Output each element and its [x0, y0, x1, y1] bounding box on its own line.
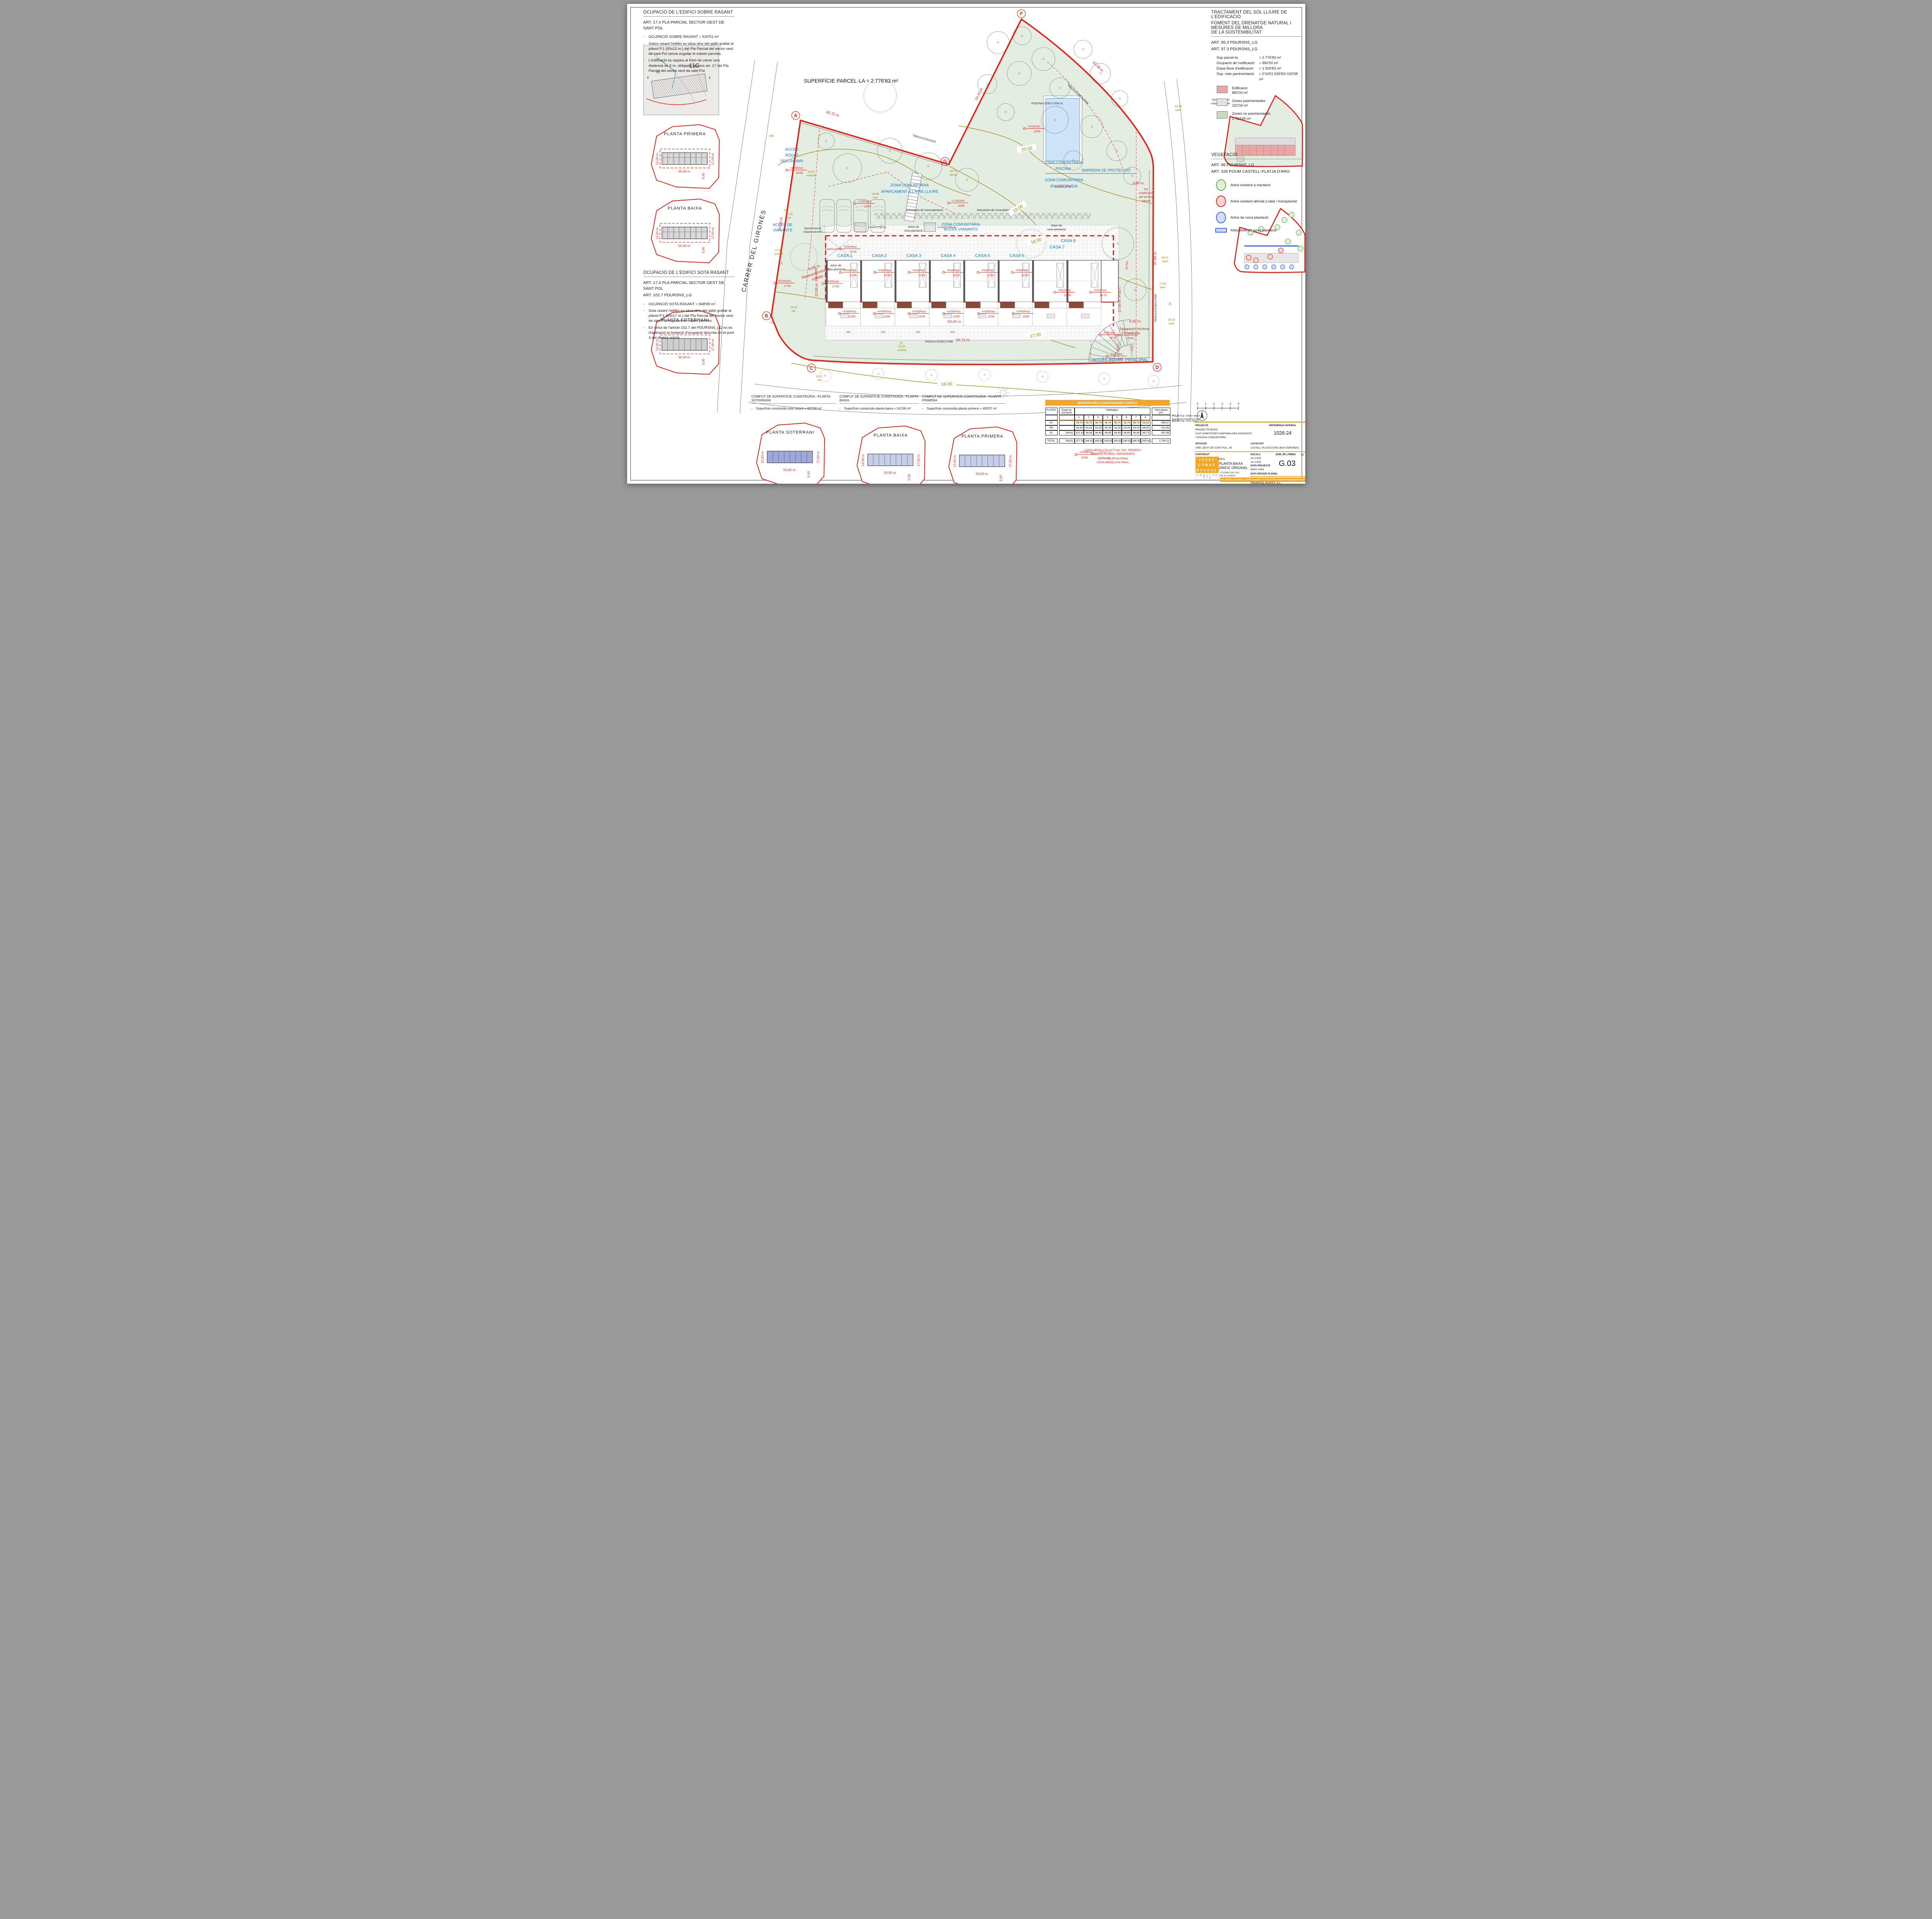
svg-text:-0'02(Pav): -0'02(Pav): [1015, 269, 1029, 272]
color-swatch: [1217, 86, 1228, 93]
svg-text:2%: 2%: [881, 330, 885, 334]
scale-tick: 1: [1205, 402, 1206, 406]
svg-text:15.41: 15.41: [898, 345, 905, 348]
svg-text:16'80: 16'80: [848, 314, 855, 318]
table-cell: 511,66: [1152, 425, 1170, 430]
svg-text:Separació mínima: Separació mínima: [1119, 327, 1149, 331]
svg-text:12,00 m.: 12,00 m.: [655, 152, 659, 165]
panel-tractament: TRACTAMENT DEL SÒL LLIURE DE L'EDIFICACI…: [1211, 10, 1302, 121]
table-cell: [1112, 435, 1122, 439]
table-cell: -: [1059, 420, 1075, 425]
svg-text:+1'20(Jar): +1'20(Jar): [951, 199, 964, 202]
table-cell: [1059, 435, 1075, 439]
topo-spot: 18.23camí: [1168, 318, 1175, 325]
svg-text:17'00: 17'00: [832, 285, 839, 288]
sheet-code: G.03: [1279, 459, 1296, 468]
table-cell: 63,28: [1131, 425, 1141, 430]
svg-text:15.17: 15.17: [816, 374, 823, 378]
internal-ref: 1026-24: [1274, 430, 1292, 436]
svg-text:50,00 m.: 50,00 m.: [976, 472, 988, 476]
table-cell: [1152, 435, 1170, 439]
svg-text:16.43: 16.43: [790, 306, 797, 309]
svg-text:2%: 2%: [846, 330, 850, 334]
cota-legend: +0'00(Pav) 16'80 COTA ABSOLUTA-ACTUAL DE…: [1075, 441, 1141, 464]
table-cell: 66,89: [1131, 430, 1141, 435]
scale-bar: 012345: [1196, 402, 1239, 410]
casa-label: CASA 2: [872, 253, 886, 258]
table-cell: 63,28: [1103, 425, 1112, 430]
table-cell: 59,75: [1075, 420, 1084, 425]
svg-text:17,00 m.: 17,00 m.: [916, 454, 920, 466]
table-cell: 8: [1141, 415, 1150, 420]
svg-text:TANCA A EXECUTAR: TANCA A EXECUTAR: [1153, 294, 1157, 323]
table-title: SUPERFICÍES CONSTRUIDES EDIFICI: [1045, 400, 1170, 406]
panel-comput-baixa: CÒMPUT DE SUPERFÍCIE CONSTRUÏDA - PLANTA…: [840, 394, 919, 410]
table-cell: PLANTA: [1045, 408, 1058, 415]
svg-text:COTA ABSOLUTA-ACTUAL DEL TERRE: COTA ABSOLUTA-ACTUAL DEL TERRENY: [1084, 449, 1141, 452]
path-right: [1164, 79, 1192, 419]
casa-label: CASA 5: [975, 253, 990, 258]
panel-sota-rasant: OCUPACIÓ DE L'EDIFICI SOTA RASANT ART. 1…: [643, 270, 735, 342]
svg-text:16'78: 16'78: [1021, 274, 1028, 277]
surface-table: SUPERFICÍES CONSTRUIDES EDIFICI PLANTAEs…: [1045, 400, 1170, 444]
svg-text:18'00: 18'00: [864, 204, 871, 208]
street-name: CARRER DEL GIRONÈS: [740, 209, 767, 293]
table-cell: 1.794,21: [1152, 439, 1170, 444]
casa-label: CASA 7: [1049, 245, 1064, 250]
svg-text:59.72 m.: 59.72 m.: [956, 338, 970, 342]
bottom-mini-plans: PLANTA SOTERRANI50,00 m.12,00 m.17,00 m.…: [756, 423, 1017, 484]
table-cell: 7: [1131, 415, 1141, 420]
table-cell: [1075, 435, 1084, 439]
svg-text:5'00%: 5'00%: [1130, 343, 1133, 352]
svg-text:-0'02(Pav): -0'02(Pav): [1058, 288, 1071, 292]
table-cell: 186,93: [1084, 439, 1094, 444]
scale-tick: 2: [1213, 402, 1214, 406]
svg-text:+0'00(Pav): +0'00(Pav): [877, 309, 891, 313]
casa-label: CASA 3: [906, 253, 921, 258]
casa-label: CASA 4: [940, 253, 955, 258]
svg-text:18.23: 18.23: [1168, 318, 1175, 321]
svg-text:17.49: 17.49: [786, 212, 793, 216]
svg-text:TALÚS: TALÚS: [1125, 261, 1128, 270]
svg-text:2%: 2%: [915, 330, 920, 334]
boundary-letter: A: [791, 111, 799, 119]
svg-text:16'78: 16'78: [987, 274, 994, 277]
table-cell: 186,93: [1103, 439, 1112, 444]
svg-text:ACCÉS: ACCÉS: [785, 147, 798, 152]
table-cell: [1141, 435, 1150, 439]
topo-spot: 17.40camí: [1159, 282, 1166, 289]
svg-text:18'00: 18'00: [957, 204, 964, 207]
table-cell: 6: [1122, 415, 1131, 420]
svg-text:SECUNDARI: SECUNDARI: [780, 159, 803, 163]
existing-tree: [987, 31, 1009, 53]
mini-plan-title: PLANTA BAIXA: [668, 206, 702, 211]
legend-arbre-talar: Arbre existent afectat a talar i transpl…: [1215, 195, 1302, 207]
table-cell: 195,04: [1141, 439, 1150, 444]
site-plan: PISCINA 10'50 X 5'50 m. SUPERFÍCIE PARCE…: [627, 4, 1305, 484]
svg-text:16'78: 16'78: [849, 250, 856, 253]
mini-plan-title: PLANTA BAIXA: [873, 433, 908, 438]
svg-text:12,00 m.: 12,00 m.: [952, 454, 956, 467]
parcel-area-title: SUPERFÍCIE PARCEL·LA = 2.776'83 m²: [804, 78, 898, 84]
boundary-letter: B: [762, 312, 770, 320]
table-cell: 186,93: [1131, 439, 1141, 444]
svg-text:Dipòsit soterrat: Dipòsit soterrat: [804, 227, 821, 230]
casa-label: CASA 6: [1009, 253, 1024, 258]
table-cell: 3: [1094, 415, 1103, 420]
svg-text:camí: camí: [1168, 322, 1174, 325]
svg-text:del terreny: del terreny: [1139, 195, 1153, 199]
svg-text:16'80: 16'80: [1081, 456, 1088, 459]
table-cell: [1103, 435, 1112, 439]
svg-text:-0'02(Pav): -0'02(Pav): [1093, 288, 1107, 292]
table-cell: 63,28: [1122, 425, 1131, 430]
data-projecte: MAIG 2024: [1251, 468, 1264, 472]
svg-text:18.25: 18.25: [808, 170, 815, 173]
svg-text:G: G: [943, 159, 947, 164]
svg-text:16'78: 16'78: [918, 274, 925, 277]
svg-text:16'80: 16'80: [987, 314, 994, 318]
svg-text:3,00 m.: 3,00 m.: [1132, 181, 1145, 185]
mini-plan-title: PLANTA PRIMERA: [961, 434, 1003, 439]
svg-text:Arbre de: Arbre de: [908, 225, 919, 229]
localitat: CASTELL-PLATJA D'ARO (BAIX EMPORDÀ): [1251, 446, 1299, 450]
boundary-letter: F: [1017, 10, 1025, 18]
svg-text:12,00 m.: 12,00 m.: [861, 454, 864, 466]
contact-bar: Col. 32765-4 // C.Lleida, 7 / 17240 Llag…: [1220, 478, 1305, 482]
mini-plan: PLANTA PRIMERA50,00 m.12,00 m.17,00 m.5,…: [949, 427, 1017, 484]
table-cell: 56,76: [1094, 420, 1103, 425]
svg-text:18'00: 18'00: [796, 171, 803, 175]
drawing-sheet: PISCINA 10'50 X 5'50 m. SUPERFÍCIE PARCE…: [627, 4, 1305, 484]
svg-text:+0'00(Pav): +0'00(Pav): [1016, 309, 1030, 313]
svg-text:19.17: 19.17: [1161, 256, 1168, 259]
table-cell: 186,93: [1112, 439, 1122, 444]
svg-text:-0'30(Jar): -0'30(Jar): [1103, 331, 1115, 334]
svg-text:B: B: [764, 313, 768, 318]
svg-text:93.38 m.: 93.38 m.: [1091, 61, 1104, 74]
svg-text:16'78: 16'78: [884, 274, 891, 277]
svg-text:C: C: [810, 365, 813, 371]
scale-tick: 3: [1221, 402, 1223, 406]
table-cell: 227,78: [1075, 439, 1084, 444]
svg-text:COTA RELATIVA FINAL: COTA RELATIVA FINAL: [1097, 457, 1128, 460]
table-cell: 186,93: [1122, 439, 1131, 444]
svg-text:+1'20(Vor): +1'20(Vor): [789, 166, 803, 170]
svg-text:RODAT: RODAT: [785, 153, 798, 158]
casa-label: CASA 1: [837, 253, 852, 258]
table-cell: 63,28: [1084, 425, 1094, 430]
svg-text:camí: camí: [1175, 108, 1181, 112]
svg-text:d'aigües pluvials: d'aigües pluvials: [803, 231, 822, 233]
svg-text:12,00 m.: 12,00 m.: [655, 226, 659, 239]
svg-text:vorlímit: vorlímit: [897, 348, 906, 352]
svg-text:16'78: 16'78: [952, 274, 959, 277]
svg-text:19'95: 19'95: [1033, 130, 1040, 133]
table-cell: 5: [1112, 415, 1122, 420]
mini-plan: PLANTA BAIXA50,00 m.12,00 m.17,00 m.5,00: [651, 199, 719, 263]
svg-text:5,00: 5,00: [701, 359, 705, 365]
svg-text:nova plantació: nova plantació: [904, 229, 923, 233]
casa-label: CASA 8: [1060, 238, 1075, 243]
svg-text:37.84 m.: 37.84 m.: [1153, 251, 1157, 265]
svg-text:-0'02(Pav): -0'02(Pav): [878, 269, 891, 272]
table-cell: 56,76: [1084, 420, 1094, 425]
svg-text:VIANANTS: VIANANTS: [773, 228, 792, 233]
svg-text:17,00 m.: 17,00 m.: [711, 226, 714, 239]
table-cell: TOTAL: [1045, 439, 1058, 444]
table-cell: PB: [1045, 425, 1058, 430]
svg-text:vor: vor: [817, 378, 821, 382]
svg-text:2%: 2%: [950, 330, 954, 334]
svg-text:16'80: 16'80: [883, 314, 890, 318]
svg-text:-0'02(Pav): -0'02(Pav): [981, 269, 994, 272]
topo-spot: 20.54camí: [1174, 105, 1181, 112]
scale-tick: 4: [1229, 402, 1231, 406]
table-cell: Total planta (m²): [1152, 408, 1170, 415]
escala: A0 1/100A2 1/200: [1251, 457, 1261, 464]
svg-text:15'65: 15'65: [1116, 357, 1123, 360]
table-cell: [1152, 415, 1170, 420]
svg-text:15'40: 15'40: [1126, 337, 1133, 340]
table-cell: [1131, 435, 1141, 439]
svg-text:5,00: 5,00: [998, 475, 1002, 481]
svg-text:D: D: [1155, 365, 1159, 370]
boundary-letter: D: [1153, 363, 1161, 371]
svg-text:-1'40(Vor): -1'40(Vor): [1120, 331, 1133, 335]
table-cell: 56,76: [1112, 420, 1122, 425]
color-swatch: [1217, 99, 1228, 106]
svg-text:6,00 m.: 6,00 m.: [1129, 320, 1141, 324]
svg-text:Arbustives de nova plantació: Arbustives de nova plantació: [906, 208, 943, 212]
svg-text:20.54: 20.54: [1174, 105, 1181, 108]
svg-text:vorlímit: vorlímit: [774, 252, 783, 256]
svg-text:50,00 m.: 50,00 m.: [678, 169, 691, 173]
table-cell: 186,93: [1094, 439, 1103, 444]
tree-new-icon: [1216, 212, 1226, 223]
svg-text:PISCINA: PISCINA: [1055, 167, 1071, 171]
topo-spot: 19.17camí: [1161, 256, 1168, 263]
lamina-num: 03: [1301, 453, 1304, 457]
table-cell: -: [1059, 425, 1075, 430]
color-swatch: [1217, 111, 1228, 119]
panel-comput-soterrani: CÒMPUT DE SUPERFÍCIE CONSTRUÏDA - PLANTA…: [752, 394, 836, 410]
table-cell: Habitatges: [1075, 408, 1150, 415]
svg-text:17.32: 17.32: [775, 248, 782, 252]
table-cell: S1: [1045, 430, 1058, 435]
svg-text:camí: camí: [1162, 259, 1168, 263]
svg-text:d60: d60: [769, 134, 774, 138]
svg-text:17,00 m.: 17,00 m.: [816, 450, 820, 463]
existing-tree: [1111, 90, 1128, 107]
svg-text:16.00: 16.00: [941, 382, 952, 387]
svg-text:5,00: 5,00: [907, 474, 911, 481]
mini-plan: PLANTA PRIMERA50,00 m.12,00 m.17,00 m.5,…: [651, 125, 719, 189]
svg-text:TANCA A EXECUTAR: TANCA A EXECUTAR: [925, 340, 953, 343]
svg-text:16'80: 16'80: [952, 314, 959, 318]
shrub-new-icon: [1215, 228, 1227, 233]
mini-plan: PLANTA BAIXA50,00 m.12,00 m.17,00 m.5,00: [857, 426, 925, 484]
svg-text:5,00: 5,00: [701, 247, 705, 253]
svg-text:50,00 m.: 50,00 m.: [884, 471, 896, 474]
table-cell: 66,89: [1094, 430, 1103, 435]
table-cell: 56,76: [1103, 420, 1112, 425]
panel-sobre-rasant: OCUPACIÓ DE L'EDIFICI SOBRE RASANT ART. …: [643, 10, 735, 75]
table-cell: 4: [1103, 415, 1112, 420]
svg-text:12,00 m.: 12,00 m.: [760, 450, 764, 463]
legend-arbustives: Arbustives de nova plantació: [1215, 228, 1302, 233]
table-cell: 56,76: [1131, 420, 1141, 425]
table-cell: 66,89: [1122, 430, 1131, 435]
svg-text:+0'00(Pav): +0'00(Pav): [946, 309, 961, 313]
legend-arbre-mantenir: Arbre existent a mantenir: [1215, 179, 1302, 191]
svg-text:8: 8: [647, 76, 649, 80]
table-cell: 63,28: [1094, 425, 1103, 430]
svg-text:-1'15(Vor): -1'15(Vor): [1110, 352, 1122, 355]
contour-label: 16.00: [937, 380, 956, 387]
svg-text:+0'00(Pav): +0'00(Pav): [842, 309, 856, 313]
svg-text:camí: camí: [1160, 286, 1166, 289]
svg-text:5'00%: 5'00%: [1116, 343, 1120, 352]
svg-text:16'50: 16'50: [1109, 336, 1116, 339]
table-cell: [1059, 415, 1075, 420]
table-cell: 2: [1084, 415, 1094, 420]
legend-edificacio: Edificació850'00 m²: [1217, 86, 1302, 95]
table-cell: 66,05: [1141, 425, 1150, 430]
legend-no-pavimentades: Zones no pavimentades1.734'49 m²: [1217, 111, 1302, 121]
svg-text:17,00 m.: 17,00 m.: [1008, 454, 1012, 467]
scale-tick: 0: [1196, 402, 1198, 406]
svg-text:ZONA COMUNITÀRIA: ZONA COMUNITÀRIA: [1044, 160, 1082, 165]
svg-text:+3'15(Jar): +3'15(Jar): [1027, 125, 1040, 128]
table-cell: 459,57: [1152, 420, 1170, 425]
svg-text:16'80: 16'80: [918, 314, 925, 318]
table-cell: 66,89: [1084, 430, 1094, 435]
table-cell: [1122, 435, 1131, 439]
svg-text:RAMPA 6'80%: RAMPA 6'80%: [825, 248, 841, 251]
svg-text:16'78: 16'78: [1064, 293, 1071, 297]
svg-text:26.72 m.: 26.72 m.: [825, 110, 840, 118]
table-cell: 249,81: [1059, 430, 1075, 435]
table-cell: 66,89: [1103, 430, 1112, 435]
svg-text:vor: vor: [791, 309, 796, 313]
svg-text:Arbre de: Arbre de: [1051, 224, 1062, 227]
architect-logo: JOSEPCOMASBOADAS: [1196, 457, 1219, 473]
boundary-letter: C: [807, 364, 815, 372]
situacio: URB. OEST DE SANT POL, 45: [1196, 446, 1232, 450]
svg-text:18.48: 18.48: [872, 192, 879, 195]
svg-text:mur: mur: [873, 195, 878, 199]
panel-comput-primera: CÒMPUT DE SUPERFÍCIE CONSTRUÏDA - PLANTA…: [922, 394, 1005, 410]
table-cell: 102,10: [1075, 430, 1084, 435]
svg-text:h mur=1'50 m.: h mur=1'50 m.: [938, 226, 956, 229]
svg-text:16'78: 16'78: [849, 274, 856, 277]
svg-text:No: No: [1144, 187, 1148, 191]
svg-text:16'80: 16'80: [1022, 314, 1029, 318]
table-cell: 65,93: [1075, 425, 1084, 430]
table-cell: 66,89: [1112, 430, 1122, 435]
table-cell: 69,73: [1141, 430, 1150, 435]
legend-arbre-nova: Arbre de nova plantació: [1215, 212, 1302, 223]
svg-text:APARCAMENT A L'AIRE LLIURE: APARCAMENT A L'AIRE LLIURE: [881, 190, 938, 194]
svg-text:5,00: 5,00: [806, 471, 810, 478]
svg-text:BARRERA DE PROTECCIÓ: BARRERA DE PROTECCIÓ: [1082, 168, 1131, 173]
topo-spot: d60: [769, 134, 774, 138]
svg-text:-0'02(Pav): -0'02(Pav): [912, 269, 925, 272]
legend-pavimentades: Zones pavimentades192'34 m²: [1217, 99, 1302, 108]
existing-tree: [1074, 40, 1092, 58]
svg-text:natural: natural: [1141, 199, 1150, 202]
panel-vegetacio: VEGETACIÓ ART. 96 PDURSNS_LG ART. 328 PO…: [1211, 153, 1302, 233]
svg-text:17.40: 17.40: [1159, 282, 1166, 285]
tree-remove-icon: [1216, 195, 1226, 207]
svg-text:-0'02(Pav): -0'02(Pav): [946, 269, 960, 272]
mini-plan: PLANTA SOTERRANI50,00 m.12,00 m.17,00 m.…: [756, 423, 824, 484]
svg-text:SEGONS PLANOL TOPOGRÀFIC: SEGONS PLANOL TOPOGRÀFIC: [1090, 452, 1135, 456]
svg-text:TALÚS 27%: TALÚS 27%: [1055, 185, 1071, 189]
mini-plan-title: PLANTA PRIMERA: [664, 132, 706, 136]
svg-text:50,00 m.: 50,00 m.: [678, 244, 691, 248]
project-name: PROJECTE BÀSIC: [1196, 428, 1252, 432]
mini-plan-title: PLANTA SOTERRANI: [766, 430, 814, 435]
svg-text:+0'00(Pav): +0'00(Pav): [912, 309, 926, 313]
table-cell: [1045, 415, 1058, 420]
projecte-label: PROJECTE: [1196, 424, 1208, 427]
street-left: [717, 60, 777, 413]
svg-text:nova plantació: nova plantació: [826, 268, 845, 271]
leafy-tree: [864, 79, 896, 112]
svg-text:vorlímit: vorlímit: [806, 174, 815, 177]
table-cell: 59,26: [1141, 420, 1150, 425]
svg-text:18.70: 18.70: [950, 169, 957, 173]
table-cell: Espai de circulació: [1059, 408, 1075, 415]
svg-text:tanca: tanca: [950, 173, 957, 177]
pool-label: PISCINA 10'50 X 5'50 m.: [1031, 102, 1063, 105]
table-cell: [1084, 435, 1094, 439]
svg-text:+0'00(Pav): +0'00(Pav): [981, 309, 995, 313]
svg-text:6: 6: [709, 76, 711, 80]
svg-text:+0'20(Vor): +0'20(Vor): [777, 279, 791, 283]
svg-text:50,00 m.: 50,00 m.: [783, 468, 796, 472]
table-cell: [1094, 435, 1103, 439]
svg-text:5,00: 5,00: [701, 173, 705, 179]
tree-keep-icon: [1216, 179, 1226, 191]
table-cell: 1: [1075, 415, 1084, 420]
svg-text:ZONA COMUNITÀRIA: ZONA COMUNITÀRIA: [1044, 177, 1083, 182]
svg-text:16'78: 16'78: [1099, 293, 1106, 297]
svg-text:17,00 m. P.SOT.: 17,00 m. P.SOT.: [1117, 286, 1122, 313]
svg-text:COTA ABSOLUTA FINAL: COTA ABSOLUTA FINAL: [1097, 461, 1129, 464]
svg-text:modificació: modificació: [1139, 191, 1153, 195]
svg-text:+0'20(Jar): +0'20(Jar): [826, 280, 839, 283]
svg-text:vor: vor: [787, 216, 791, 219]
svg-text:A: A: [794, 113, 797, 118]
svg-text:-0'02(Pav): -0'02(Pav): [843, 269, 857, 272]
svg-text:TANCA EXISTENT: TANCA EXISTENT: [912, 134, 936, 144]
panel-title: OCUPACIÓ DE L'EDIFICI SOBRE RASANT: [643, 10, 735, 17]
table-cell: P1: [1045, 420, 1058, 425]
svg-text:17,00 m.: 17,00 m.: [711, 152, 714, 165]
table-cell: [1045, 435, 1058, 439]
table-cell: 822,98: [1152, 430, 1170, 435]
table-cell: 56,76: [1122, 420, 1131, 425]
svg-text:nova plantació: nova plantació: [1047, 228, 1065, 231]
svg-text:+1'20(Jar): +1'20(Jar): [857, 199, 871, 203]
svg-text:h mur=1'50 m.: h mur=1'50 m.: [868, 226, 886, 229]
svg-text:F: F: [1020, 11, 1023, 16]
